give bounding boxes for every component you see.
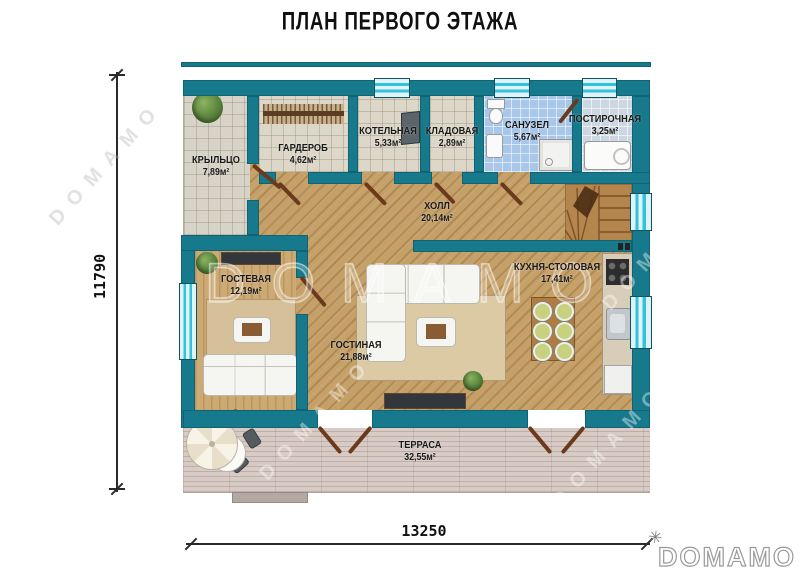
dimension-line-vertical bbox=[116, 72, 118, 492]
window-top-bathroom bbox=[494, 78, 530, 98]
page-title: ПЛАН ПЕРВОГО ЭТАЖА bbox=[282, 7, 519, 36]
label-wardrobe: ГАРДЕРОБ4,62м² bbox=[278, 143, 328, 166]
wardrobe-rail-bar bbox=[263, 111, 344, 116]
dining-plate bbox=[533, 342, 552, 361]
label-guest: ГОСТЕВАЯ12,19м² bbox=[221, 274, 271, 297]
room-area: 20,14м² bbox=[421, 213, 452, 224]
window-right-stairs bbox=[630, 193, 652, 231]
shower-tray bbox=[539, 139, 573, 171]
label-terrace: ТЕРРАСА32,55м² bbox=[399, 440, 442, 463]
dimension-line-horizontal bbox=[186, 543, 650, 545]
wardrobe-rail bbox=[263, 104, 344, 124]
room-area: 12,19м² bbox=[221, 286, 271, 297]
room-name: КРЫЛЬЦО bbox=[192, 154, 240, 166]
guest-coffee-table-top bbox=[242, 323, 262, 336]
label-kitchen: КУХНЯ-СТОЛОВАЯ17,41м² bbox=[514, 262, 600, 285]
wall-bottom-seg bbox=[183, 410, 318, 428]
dimension-width-label: 13250 bbox=[394, 522, 454, 540]
room-name: ТЕРРАСА bbox=[399, 439, 442, 451]
guest-coffee-table bbox=[233, 317, 271, 343]
wall-wardrobe-boiler bbox=[348, 96, 358, 172]
label-storage: КЛАДОВАЯ2,89м² bbox=[426, 126, 478, 149]
wall-porch-upper bbox=[247, 96, 259, 164]
dimension-height-label: 11790 bbox=[91, 255, 109, 299]
floor-plan-canvas: ПЛАН ПЕРВОГО ЭТАЖА bbox=[0, 0, 800, 580]
room-name: ГОСТЕВАЯ bbox=[221, 273, 271, 285]
window-top-laundry bbox=[582, 78, 617, 98]
room-area: 32,55м² bbox=[399, 452, 442, 463]
wall-bottom-seg bbox=[585, 410, 650, 428]
watermark-diagonal: DOMAMO bbox=[45, 97, 169, 231]
wall-hall-guest bbox=[181, 235, 308, 251]
kitchen-sink-bowl bbox=[610, 314, 625, 333]
living-coffee-table bbox=[416, 317, 456, 347]
wall-row1-seg bbox=[394, 172, 432, 184]
room-name: ГОСТИНАЯ bbox=[330, 339, 381, 351]
room-area: 7,89м² bbox=[192, 167, 240, 178]
guest-sofa bbox=[203, 354, 297, 396]
washing-machine-door bbox=[613, 148, 630, 165]
wall-bottom-seg bbox=[372, 410, 528, 428]
room-name: ПОСТИРОЧНАЯ bbox=[569, 113, 641, 125]
fridge bbox=[604, 365, 632, 394]
room-area: 21,88м² bbox=[330, 352, 381, 363]
room-name: ХОЛЛ bbox=[424, 200, 450, 212]
label-boiler: КОТЕЛЬНАЯ5,33м² bbox=[359, 126, 417, 149]
label-living: ГОСТИНАЯ21,88м² bbox=[330, 340, 381, 363]
living-coffee-table-top bbox=[426, 324, 446, 339]
bathroom-sink bbox=[486, 134, 503, 158]
window-left-guest bbox=[179, 283, 197, 360]
toilet-bowl bbox=[489, 108, 503, 124]
room-area: 4,62м² bbox=[278, 155, 328, 166]
umbrella-pole bbox=[209, 441, 215, 447]
window-right-kitchen bbox=[630, 296, 652, 349]
dining-plate bbox=[555, 322, 574, 341]
porch-plant bbox=[192, 92, 223, 123]
living-tv-console bbox=[384, 393, 466, 409]
living-plant bbox=[463, 371, 483, 391]
wall-row1-seg bbox=[462, 172, 498, 184]
room-area: 3,25м² bbox=[569, 126, 641, 137]
roof-edge-line bbox=[181, 62, 651, 67]
wall-row1-seg bbox=[530, 172, 650, 184]
label-bathroom: САНУЗЕЛ5,67м² bbox=[505, 120, 549, 143]
room-name: ГАРДЕРОБ bbox=[278, 142, 328, 154]
dining-plate bbox=[555, 342, 574, 361]
room-area: 2,89м² bbox=[426, 138, 478, 149]
room-area: 5,67м² bbox=[505, 132, 549, 143]
window-top-boiler bbox=[374, 78, 410, 98]
label-laundry: ПОСТИРОЧНАЯ3,25м² bbox=[569, 114, 641, 137]
shower-drain bbox=[545, 158, 553, 166]
room-area: 17,41м² bbox=[514, 274, 600, 285]
terrace-step bbox=[232, 492, 308, 503]
room-name: САНУЗЕЛ bbox=[505, 119, 549, 131]
label-porch: КРЫЛЬЦО7,89м² bbox=[192, 155, 240, 178]
wall-top bbox=[183, 80, 650, 96]
wall-porch-lower bbox=[247, 200, 259, 235]
room-name: КОТЕЛЬНАЯ bbox=[359, 125, 417, 137]
wall-switches bbox=[618, 243, 630, 250]
washing-machine bbox=[584, 141, 631, 170]
wall-guest-living-lower bbox=[296, 314, 308, 410]
dining-plate bbox=[533, 322, 552, 341]
wall-right bbox=[632, 96, 650, 428]
label-hall: ХОЛЛ20,14м² bbox=[421, 201, 452, 224]
room-name: КУХНЯ-СТОЛОВАЯ bbox=[514, 261, 600, 273]
brand-logo: DOMAMO bbox=[658, 542, 796, 573]
room-area: 5,33м² bbox=[359, 138, 417, 149]
wall-row1-seg bbox=[308, 172, 362, 184]
room-name: КЛАДОВАЯ bbox=[426, 125, 478, 137]
